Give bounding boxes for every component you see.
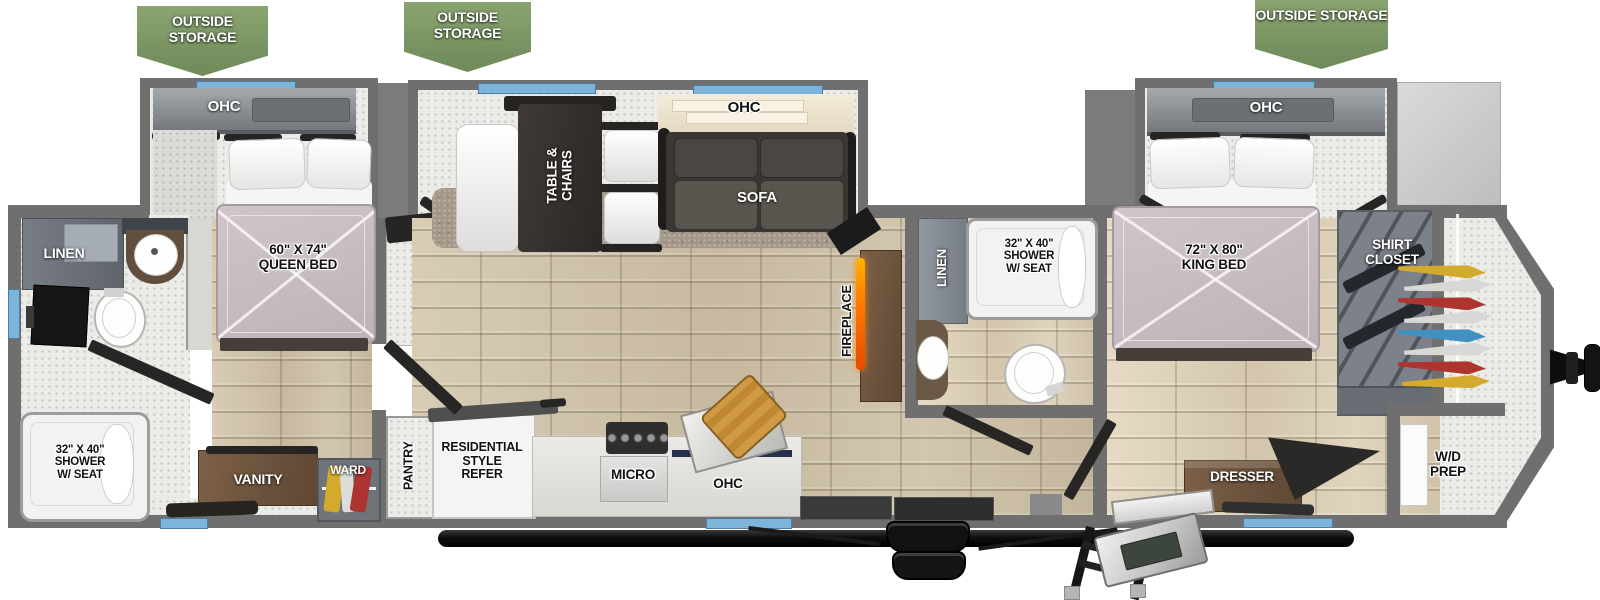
vanity-top-items (206, 446, 318, 454)
fold-out-door-glass (1120, 531, 1183, 570)
rear-bath-tv-bracket (26, 306, 34, 328)
entry-step-2 (892, 551, 966, 580)
wd-prep-left-wall (1387, 403, 1400, 517)
slide-gap-block-right (1085, 90, 1137, 218)
entry-mat-right (894, 497, 994, 521)
king-bed-stitch-border (1123, 217, 1309, 341)
dinette-chair-1 (604, 130, 660, 182)
queen-bed-mattress (216, 204, 376, 344)
outside-storage-banner-2: OUTSIDE STORAGE (404, 2, 531, 72)
queen-pillow-right (306, 138, 372, 190)
outside-storage-label-3: OUTSIDE STORAGE (1255, 0, 1388, 23)
king-bed-mattress (1112, 206, 1320, 352)
mid-shower-label: 32" X 40" SHOWER W/ SEAT (974, 238, 1084, 275)
sofa-label: SOFA (722, 190, 792, 206)
queen-bed-stitch-border (227, 215, 365, 333)
fireplace-label: FIREPLACE (840, 269, 854, 373)
queen-bed-base (220, 338, 368, 351)
mid-bath-sink (917, 336, 949, 380)
king-bed-base (1116, 348, 1312, 361)
mid-bath-bottom-wall (905, 405, 1107, 418)
dinette-bench (456, 124, 520, 252)
chair-arm-bottom (600, 244, 662, 252)
stair-foot-right (1130, 584, 1146, 598)
rear-toilet-seat (102, 298, 136, 338)
king-pillow-left (1149, 137, 1231, 190)
rv-floorplan-canvas: { "banners": ["OUTSIDE STORAGE", "OUTSID… (0, 0, 1600, 600)
chair-arm-mid (600, 184, 662, 192)
rear-ohc-tray (252, 98, 350, 122)
rear-shower-label: 32" X 40" SHOWER W/ SEAT (26, 444, 134, 481)
sofa-back-cushion-2 (760, 138, 844, 178)
top-wall-mid (866, 205, 1138, 218)
outside-storage-banner-1: OUTSIDE STORAGE (137, 6, 268, 76)
top-wall-rear (8, 205, 149, 218)
dinette-chair-2 (604, 192, 660, 244)
mid-linen-label: LINEN (935, 228, 949, 308)
rear-toilet-hinge (104, 288, 124, 297)
pantry-label: PANTRY (402, 420, 416, 512)
sofa-ohc-label: OHC (716, 100, 772, 116)
refrigerator-label: RESIDENTIAL STYLE REFER (434, 441, 530, 482)
fireplace-flame-strip (856, 258, 865, 370)
entry-mat-left (800, 496, 892, 520)
outside-storage-label-2: OUTSIDE STORAGE (404, 2, 531, 41)
dresser-label: DRESSER (1188, 470, 1296, 485)
hitch-jack (1566, 352, 1578, 384)
king-pillow-right (1233, 137, 1315, 190)
rear-slide-sidewall (153, 130, 217, 218)
front-cap-upper-profile (1397, 82, 1501, 220)
rear-linen-label: LINEN (26, 246, 102, 261)
dinette-label: TABLE & CHAIRS (545, 128, 574, 224)
entry-step-1 (886, 521, 970, 553)
rear-sink-drain (151, 248, 158, 255)
bottom-window-rear (160, 518, 208, 529)
chair-arm-top (600, 122, 662, 130)
front-ohc-label: OHC (1240, 100, 1292, 116)
rear-side-window (8, 289, 20, 339)
kitchen-ohc-label: OHC (700, 477, 756, 492)
hitch-coupler (1584, 344, 1600, 392)
rear-ohc-label: OHC (198, 99, 250, 115)
stair-foot-left (1064, 586, 1080, 600)
fireplace-cabinet (860, 250, 902, 402)
rear-sink (134, 234, 178, 276)
shirt-closet-label: SHIRT CLOSET (1344, 238, 1440, 267)
sofa-back-cushion-1 (674, 138, 758, 178)
entry-wall-stub (1030, 494, 1062, 515)
queen-bed-label: 60" X 74" QUEEN BED (238, 243, 358, 272)
queen-pillow-left (228, 138, 306, 191)
outside-storage-banner-3: OUTSIDE STORAGE (1255, 0, 1388, 69)
bottom-window-bedroom (1243, 518, 1333, 528)
living-slide-window-left (478, 83, 596, 94)
vanity-label: VANITY (212, 472, 304, 487)
wd-prep-label: W/D PREP (1414, 450, 1482, 479)
rear-bath-tv (30, 285, 89, 348)
stove-cooktop (606, 422, 668, 454)
king-bed-label: 72" X 80" KING BED (1154, 243, 1274, 272)
wd-prep-top-wall (1387, 403, 1505, 416)
microwave-label: MICRO (600, 468, 666, 483)
outside-storage-label-1: OUTSIDE STORAGE (137, 6, 268, 45)
wardrobe-label: WARD (320, 464, 376, 477)
